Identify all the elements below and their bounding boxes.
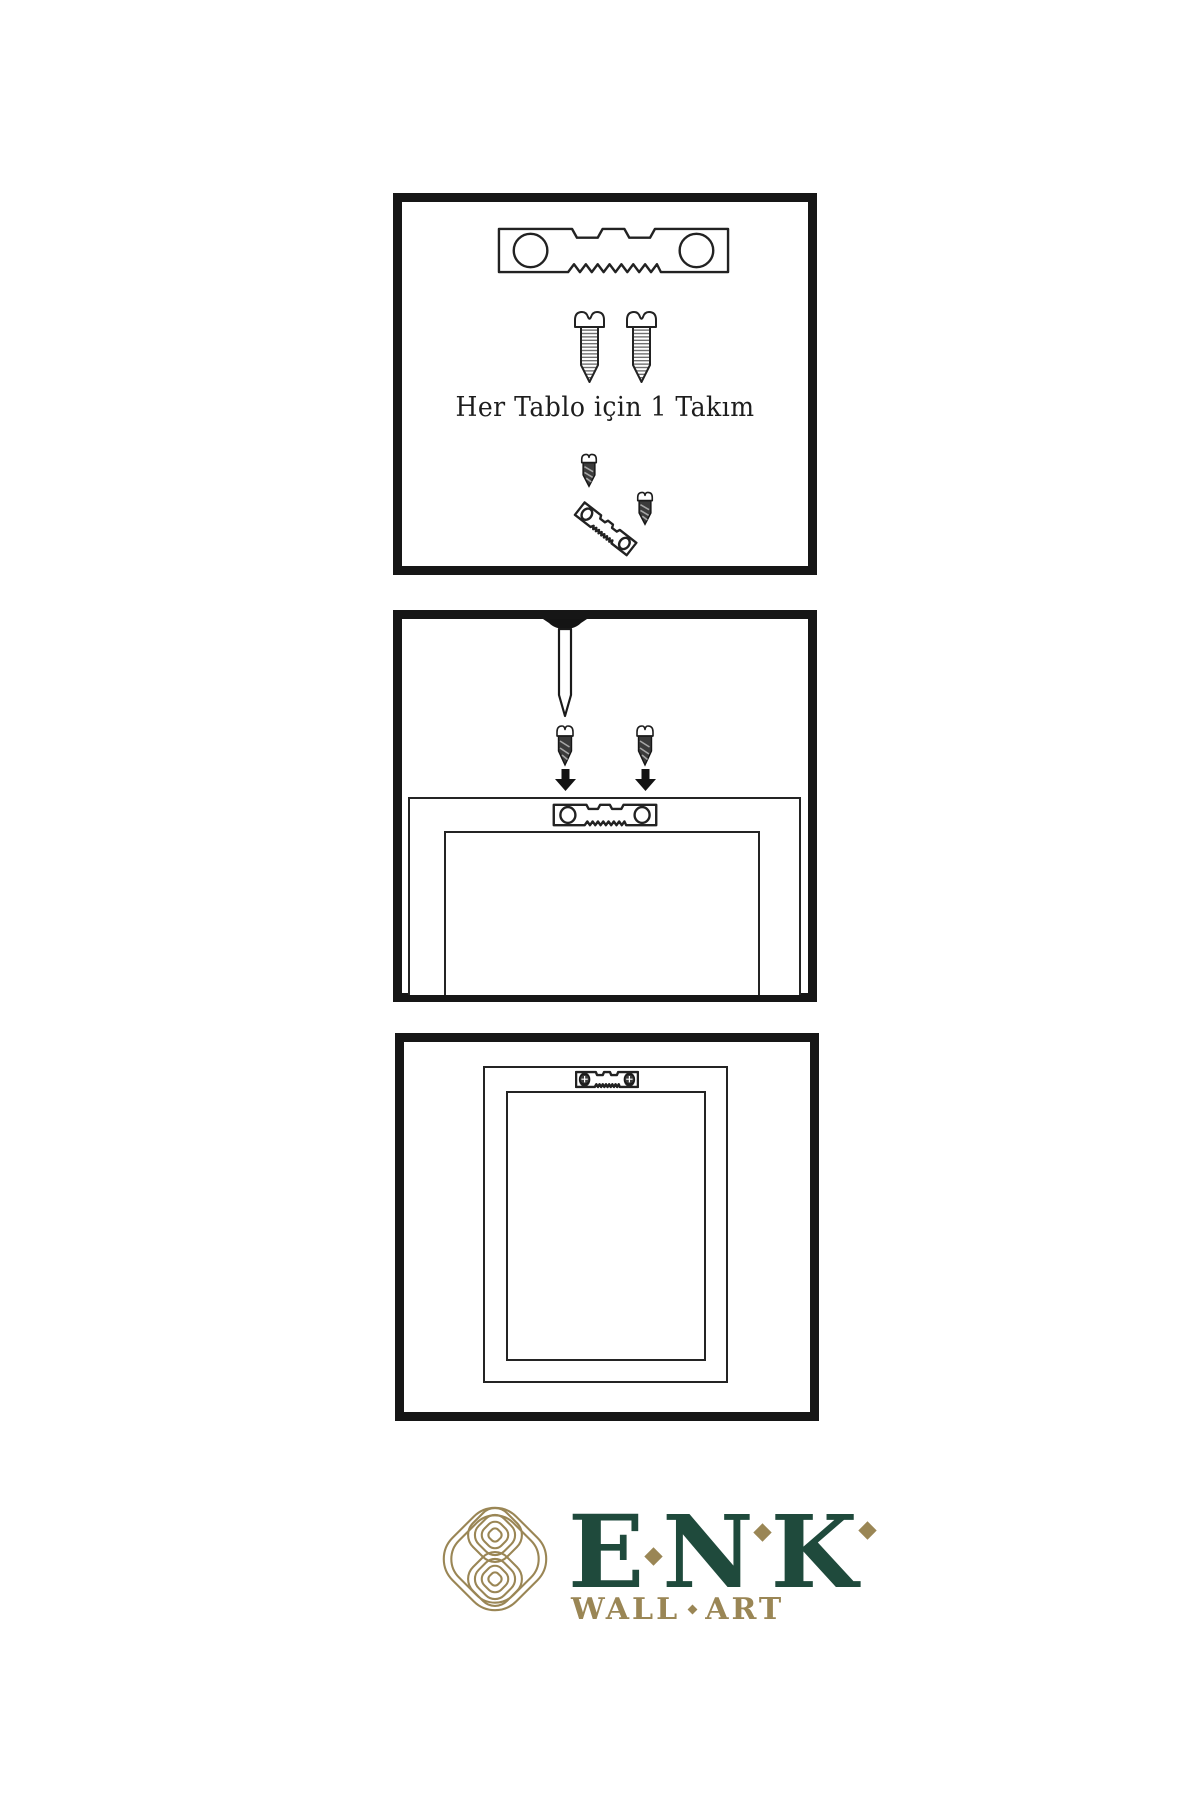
frame-back-with-sawtooth-hanger-icon: [552, 802, 658, 828]
screw-icon: [573, 308, 606, 384]
diamond-separator-icon: [688, 1605, 698, 1615]
diamond-accent-icon: [753, 1523, 771, 1541]
brand-letter: N: [662, 1502, 753, 1602]
tagline-word: ART: [705, 1592, 784, 1627]
step-panel-3: [395, 1033, 819, 1421]
tagline-word: WALL: [571, 1592, 680, 1627]
screw-icon: [625, 308, 658, 384]
brand-letter: E: [568, 1502, 644, 1602]
brand-tagline: WALL ART: [571, 1592, 784, 1627]
frame-back-inner-edge: [444, 831, 760, 995]
wall-nail-icon: [542, 619, 588, 723]
dark-screw-icon: [554, 723, 576, 767]
brand-wordmark: E N K: [568, 1502, 874, 1602]
brand-letter: K: [771, 1502, 858, 1602]
down-arrow-icon: [635, 769, 656, 791]
diamond-accent-icon: [858, 1521, 876, 1539]
diamond-accent-icon: [645, 1547, 663, 1565]
dark-screw-icon: [634, 723, 656, 767]
hanging-frame-inner-edge: [506, 1091, 706, 1361]
sawtooth-hanger-icon: [495, 223, 732, 278]
down-arrow-icon: [555, 769, 576, 791]
knot-emblem-icon: [437, 1489, 553, 1625]
frame-back-with-screwed-hanger-icon: [575, 1070, 639, 1089]
step-panel-2: [393, 610, 817, 1002]
angled-hanger-with-screws-icon: [573, 450, 681, 568]
step-panel-1: Her Tablo için 1 Takım: [393, 193, 817, 575]
kit-caption: Her Tablo için 1 Takım: [416, 392, 794, 423]
